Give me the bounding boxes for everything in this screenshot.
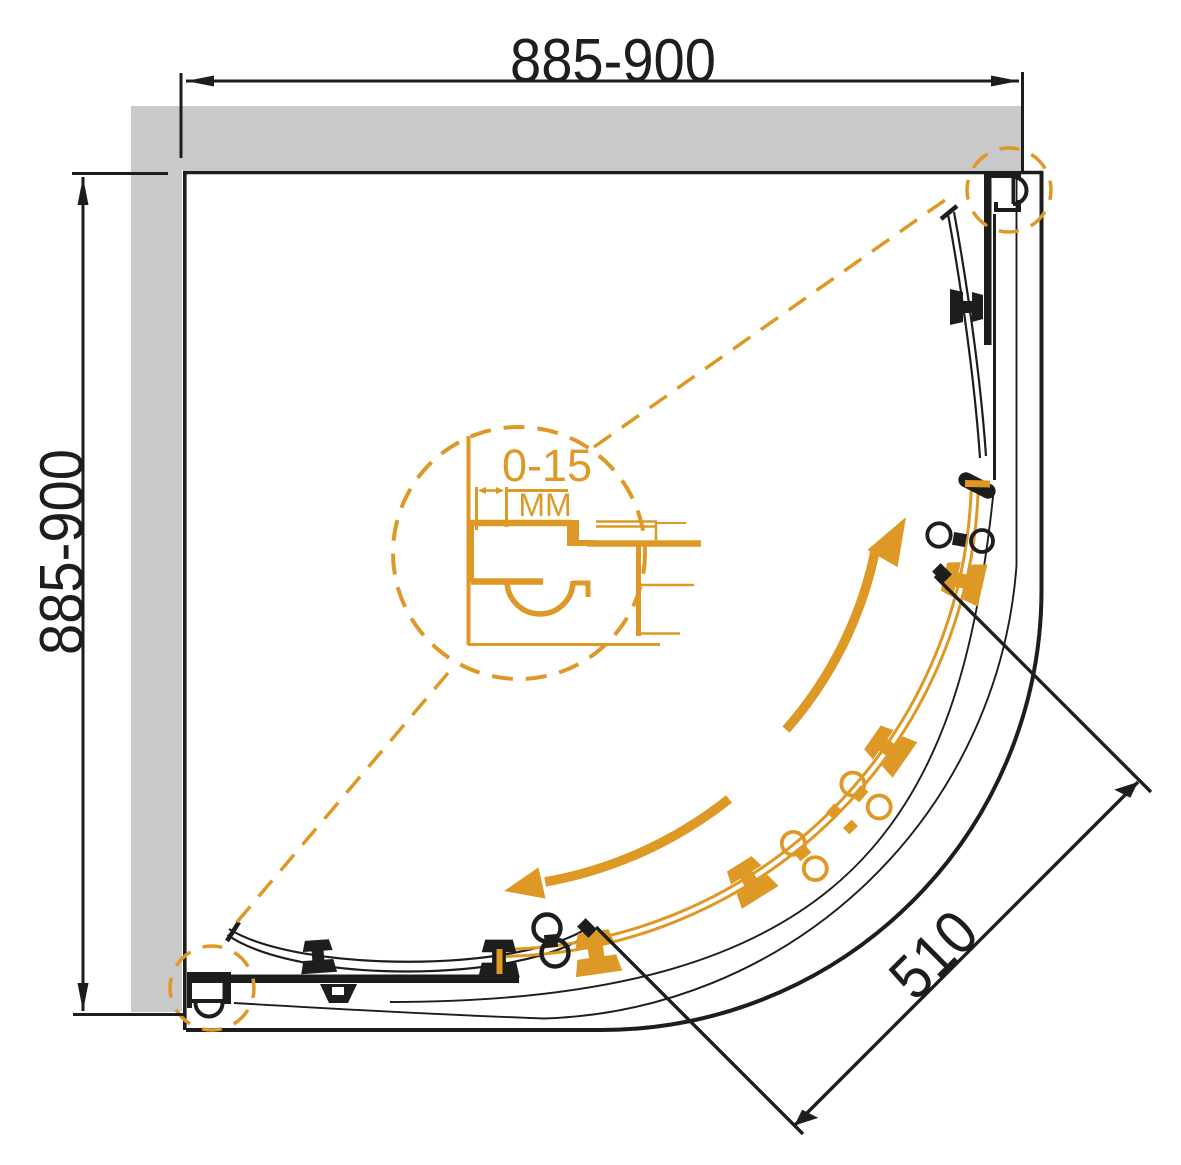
svg-text:885-900: 885-900 bbox=[28, 449, 97, 655]
svg-text:885-900: 885-900 bbox=[510, 27, 716, 96]
svg-text:MM: MM bbox=[518, 487, 571, 523]
svg-text:0-15: 0-15 bbox=[502, 440, 592, 491]
